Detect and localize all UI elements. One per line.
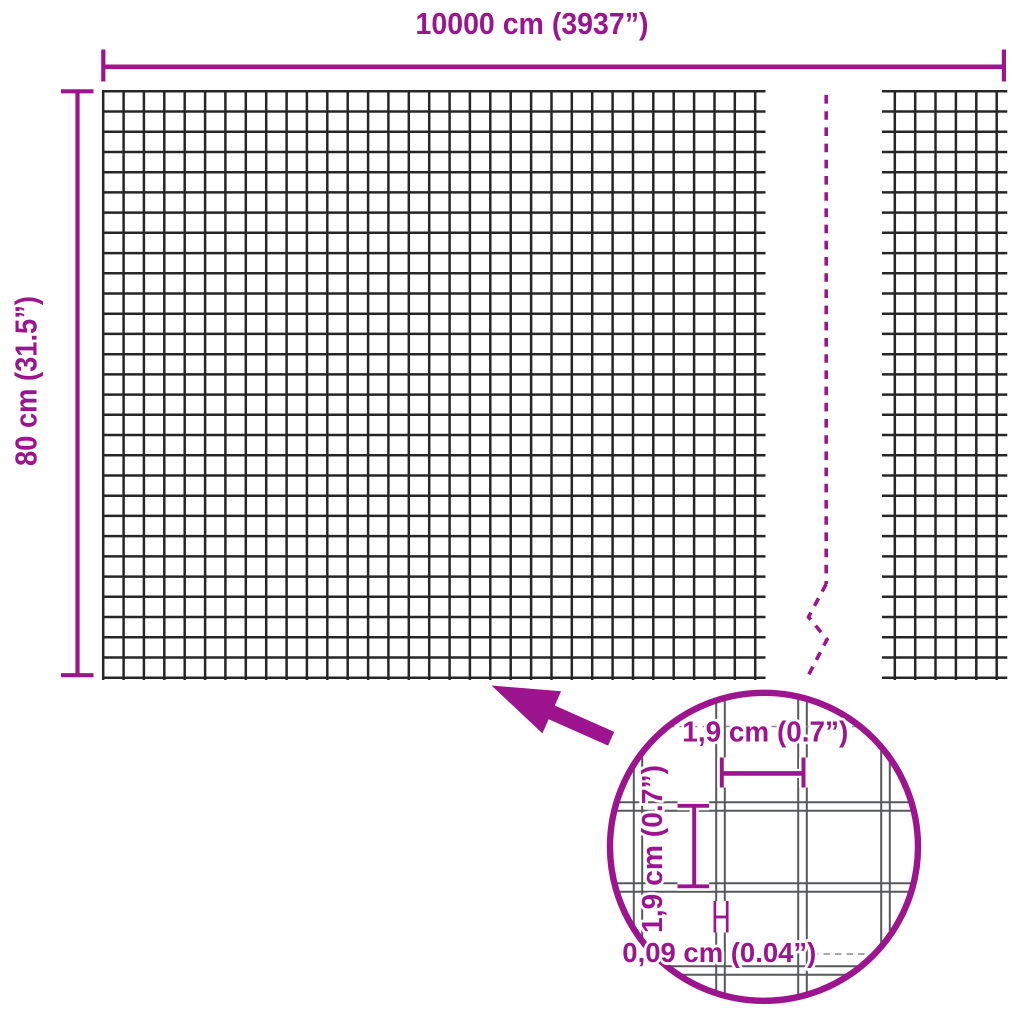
- svg-text:1,9 cm (0.7”): 1,9 cm (0.7”): [682, 716, 848, 748]
- svg-text:10000 cm (3937”): 10000 cm (3937”): [416, 7, 649, 41]
- svg-text:1,9 cm (0.7”): 1,9 cm (0.7”): [637, 765, 669, 933]
- svg-text:80 cm (31.5”): 80 cm (31.5”): [9, 296, 44, 466]
- svg-text:0,09 cm (0.04”): 0,09 cm (0.04”): [622, 937, 816, 968]
